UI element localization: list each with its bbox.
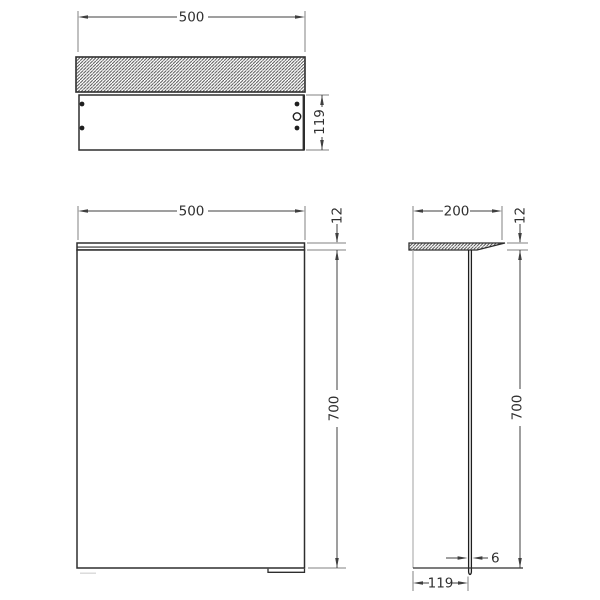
side-view: 200 12 700 [409, 204, 529, 592]
arrowhead-icon [492, 209, 502, 213]
arrowhead-icon [335, 558, 339, 568]
dim-top-width: 500 [78, 10, 305, 52]
arrowhead-icon [518, 558, 522, 568]
dim-label-side-depth: 200 [444, 204, 470, 220]
dim-label-side-panel-offset: 119 [428, 575, 454, 591]
arrowhead-icon [320, 95, 324, 105]
dim-side-depth: 200 [413, 204, 502, 240]
dim-label-side-height: 700 [510, 395, 526, 421]
arrowhead-icon [518, 233, 522, 243]
arrowhead-icon [78, 209, 88, 213]
top-plate-front-edge [77, 243, 305, 250]
dim-side-panel-thickness: 6 [446, 550, 500, 566]
arrowhead-icon [458, 556, 468, 560]
technical-drawing: 500 119 500 [0, 0, 600, 600]
mirror-plate-section [76, 57, 305, 92]
arrowhead-icon [295, 209, 305, 213]
dim-top-depth: 119 [306, 95, 329, 150]
dim-label-front-height: 700 [327, 396, 343, 422]
dim-side-panel-offset: 119 [413, 571, 468, 591]
top-view: 500 119 [76, 10, 329, 150]
arrowhead-icon [413, 209, 423, 213]
fastener-dot-icon [295, 102, 300, 107]
dim-front-width: 500 [78, 204, 305, 240]
mirror-door-front [77, 250, 305, 568]
top-plate-section [409, 243, 505, 250]
front-view: 500 12 700 [77, 204, 346, 574]
arrowhead-icon [295, 15, 305, 19]
arrowhead-icon [335, 233, 339, 243]
fastener-dot-icon [295, 126, 300, 131]
dim-side-height: 700 [510, 250, 526, 568]
dim-side-plate-thickness: 12 [507, 207, 529, 260]
bottom-lip [268, 569, 305, 573]
dim-label-side-plate-thickness: 12 [513, 207, 529, 224]
arrowhead-icon [413, 581, 423, 585]
arrowhead-icon [458, 581, 468, 585]
dim-label-side-panel-thickness: 6 [491, 550, 500, 566]
arrowhead-icon [78, 15, 88, 19]
arrowhead-icon [320, 140, 324, 150]
dim-label-top-width: 500 [179, 10, 205, 26]
panel-bottom-cap [469, 573, 472, 575]
fastener-dot-icon [80, 102, 85, 107]
dim-label-top-depth: 119 [312, 109, 328, 135]
dim-front-plate-thickness: 12 [307, 207, 346, 260]
dim-label-front-width: 500 [179, 204, 205, 220]
fastener-dot-icon [80, 126, 85, 131]
drawing-canvas: 500 119 500 [0, 0, 600, 600]
dim-front-height: 700 [308, 250, 346, 568]
arrowhead-icon [472, 556, 482, 560]
dim-label-front-plate-thickness: 12 [330, 207, 346, 224]
cabinet-body-top [79, 95, 304, 150]
